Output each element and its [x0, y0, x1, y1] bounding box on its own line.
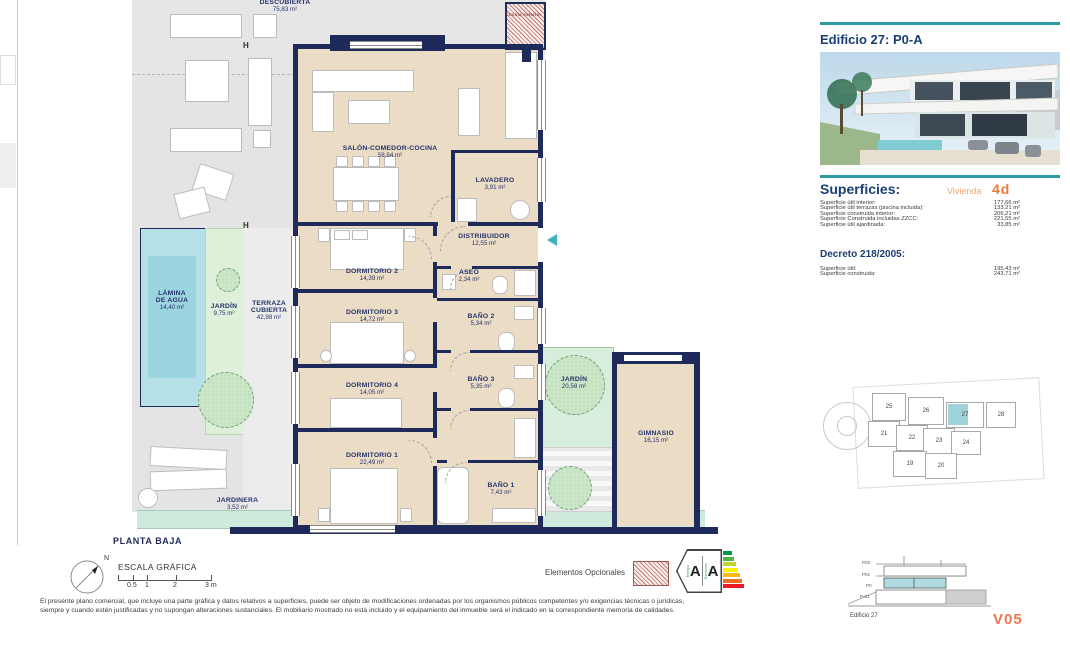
window [537, 158, 546, 202]
elevation-level: P0 [866, 583, 872, 588]
window [291, 236, 300, 288]
bed [330, 468, 398, 524]
partition [437, 350, 451, 353]
bed [330, 398, 402, 428]
sun-lounger [150, 469, 228, 492]
lamp [404, 350, 416, 362]
sofa [312, 70, 414, 92]
disclaimer-line2: siempre y cuando estén justificadas y no… [40, 607, 760, 616]
partition [298, 289, 433, 293]
outdoor-sofa [170, 128, 242, 152]
dining-table [333, 167, 399, 201]
chair [352, 201, 364, 212]
site-block: 28 [986, 402, 1016, 428]
energy-bar [723, 568, 738, 572]
room-label-terraza-cubierta: TERRAZA CUBIERTA 42,98 m² [245, 300, 293, 321]
nightstand [318, 508, 330, 522]
scale-label: ESCALA GRÁFICA [118, 562, 197, 572]
energy-bar [723, 584, 744, 588]
h-marker: H [243, 221, 249, 230]
energy-bar [723, 562, 736, 566]
floor-name: PLANTA BAJA [113, 536, 182, 546]
bed [330, 322, 404, 364]
room-label-salon: SALÓN-COMEDOR-COCINA 58,94 m² [340, 145, 440, 159]
partition [437, 408, 451, 411]
partition [470, 408, 538, 411]
energy-left-text: Energía [686, 565, 690, 577]
optional-elements-swatch [633, 561, 669, 586]
page-title: Edificio 27: P0-A [820, 32, 923, 47]
room-label-dormitorio1: DORMITORIO 1 22,49 m² [330, 452, 414, 466]
superficies-accent-line [820, 175, 1060, 178]
site-block: 20 [925, 453, 957, 479]
cocina-exterior-optional [505, 2, 546, 50]
pool-water [148, 256, 196, 378]
terraza-cubierta-zone [243, 228, 295, 520]
room-label-bano1: BAÑO 1 7,43 m² [472, 482, 530, 496]
scale-tick: 1 [145, 582, 149, 589]
elevation-level: P02 [862, 560, 870, 565]
room-label-jardinera: JARDINERA 3,52 m² [210, 497, 265, 511]
washing-machine [510, 200, 530, 220]
window [537, 364, 546, 400]
cocina-exterior-label: Cocina exterior [505, 12, 542, 17]
duct-shaft [514, 270, 536, 296]
window [537, 470, 546, 516]
sofa [312, 92, 334, 132]
gimnasio-interior [617, 364, 694, 526]
pillow [352, 230, 368, 240]
room-label-lamina-agua: LÁMINA DE AGUA 14,40 m² [155, 290, 189, 311]
energy-bar [723, 551, 732, 555]
room-label-aseo: ASEO 2,34 m² [447, 269, 491, 283]
chair [336, 201, 348, 212]
north-label: N [104, 555, 109, 562]
toilet [498, 388, 515, 408]
partition [451, 150, 538, 153]
sink [514, 306, 534, 320]
elevation-key: P02 P01 P0 P-01 [846, 552, 996, 614]
h-marker: H [243, 41, 249, 50]
partition [437, 298, 538, 301]
sidebar-accent-line [820, 22, 1060, 25]
version-label: V05 [993, 611, 1023, 628]
outdoor-armchair [185, 60, 229, 102]
partition [468, 460, 538, 463]
partition [433, 392, 437, 438]
laundry-counter [457, 198, 477, 222]
scale-tick: 0.5 [127, 582, 137, 589]
energy-rating-icon: Energía A Emisiones A [676, 549, 746, 593]
room-label-dormitorio4: DORMITORIO 4 14,05 m² [330, 382, 414, 396]
site-block: 19 [893, 451, 927, 477]
chair [368, 201, 380, 212]
room-label-jardin-lateral: JARDÍN 9,75 m² [203, 303, 245, 317]
edge-artifact [0, 143, 16, 188]
decreto-heading: Decreto 218/2005: [820, 249, 905, 260]
decreto-row: Superficie construida:243,71 m² [820, 272, 1020, 277]
partition [433, 322, 437, 368]
entrance-opening [538, 228, 543, 262]
partition [298, 428, 433, 432]
gimnasio-wall-left [612, 352, 617, 528]
room-label-dormitorio2: DORMITORIO 2 14,39 m² [330, 268, 414, 282]
energy-bar [723, 557, 734, 561]
energy-right-text: Emisiones [704, 563, 708, 579]
sun-lounger [150, 446, 228, 470]
window [291, 372, 300, 424]
surface-row: Superficie útil ajardinada:33,85 m² [820, 223, 1020, 228]
elevation-level: P-01 [860, 594, 870, 599]
outdoor-table [253, 14, 277, 38]
coffee-table [348, 100, 390, 124]
kitchen-counter [505, 52, 537, 139]
room-label-bano3: BAÑO 3 5,35 m² [450, 376, 512, 390]
outdoor-side-table [253, 130, 271, 148]
window [537, 308, 546, 344]
site-roundabout-inner [837, 416, 857, 436]
nightstand [318, 228, 330, 242]
scale-tick: 2 [173, 582, 177, 589]
window [350, 41, 422, 49]
room-label-terraza-descubierta: DESCUBIERTA 75,83 m² [240, 0, 330, 13]
window [291, 464, 300, 516]
closet [514, 418, 536, 458]
tree-icon [216, 268, 240, 292]
lamp [320, 350, 332, 362]
toilet [492, 276, 508, 294]
room-name: Cocina exterior [505, 12, 542, 17]
kitchen-island [458, 88, 480, 136]
nightstand [400, 508, 412, 522]
energy-letter: A [708, 563, 719, 580]
wall-stub [522, 46, 531, 62]
site-plan: 25 26 27 28 21 22 23 24 19 20 [815, 360, 1065, 500]
energy-bar [723, 573, 740, 577]
partition [433, 466, 437, 530]
partition [468, 222, 538, 226]
double-sink [492, 508, 536, 523]
pillow [334, 230, 350, 240]
superficies-heading: Superficies: [820, 181, 900, 197]
partition [298, 364, 433, 368]
window [310, 525, 395, 533]
partition [451, 152, 455, 222]
site-block: 26 [908, 397, 944, 425]
toilet [498, 332, 515, 352]
scale-tick: 3 m [205, 582, 217, 589]
vivienda-label: Vivienda [947, 186, 981, 196]
palm-tree-icon [548, 466, 592, 510]
disclaimer-line1: El presente plano comercial, que incluye… [40, 598, 760, 607]
energy-letter: A [690, 563, 701, 580]
gimnasio-wall-right [694, 352, 700, 528]
room-label-dormitorio3: DORMITORIO 3 14,72 m² [330, 309, 414, 323]
window [537, 60, 546, 130]
outdoor-shelf [248, 58, 272, 126]
partition [470, 350, 538, 353]
sink [514, 365, 534, 379]
partition [433, 226, 437, 236]
site-block-highlighted: 27 [946, 402, 984, 428]
parasol [138, 488, 158, 508]
scale-bar [118, 575, 212, 581]
outdoor-sofa [170, 14, 242, 38]
entrance-arrow-icon [547, 234, 557, 246]
property-boundary-line [17, 0, 18, 545]
site-block: 25 [872, 393, 906, 421]
vivienda-code: 4d [992, 181, 1010, 197]
room-label-jardin-patio: JARDÍN 20,58 m² [546, 376, 602, 390]
room-label-distribuidor: DISTRIBUIDOR 12,55 m² [454, 233, 514, 247]
north-compass-icon [68, 556, 112, 596]
gimnasio-skylight [624, 355, 682, 361]
partition [437, 460, 447, 463]
elevation-caption: Edificio 27 [850, 613, 878, 619]
palm-tree-icon [198, 372, 254, 428]
partition [298, 222, 438, 226]
room-label-bano2: BAÑO 2 5,34 m² [450, 313, 512, 327]
chair [384, 201, 396, 212]
villa-render-image [820, 52, 1060, 165]
edge-artifact [0, 55, 16, 85]
room-label-gimnasio: GIMNASIO 16,15 m² [622, 430, 690, 444]
plan-sheet: Cocina exterior [0, 0, 1070, 650]
room-label-lavadero: LAVADERO 3,91 m² [470, 177, 520, 191]
energy-bar [723, 579, 742, 583]
elevation-level: P01 [862, 572, 870, 577]
site-block: 24 [951, 431, 981, 455]
optional-elements-label: Elementos Opcionales [545, 568, 625, 577]
